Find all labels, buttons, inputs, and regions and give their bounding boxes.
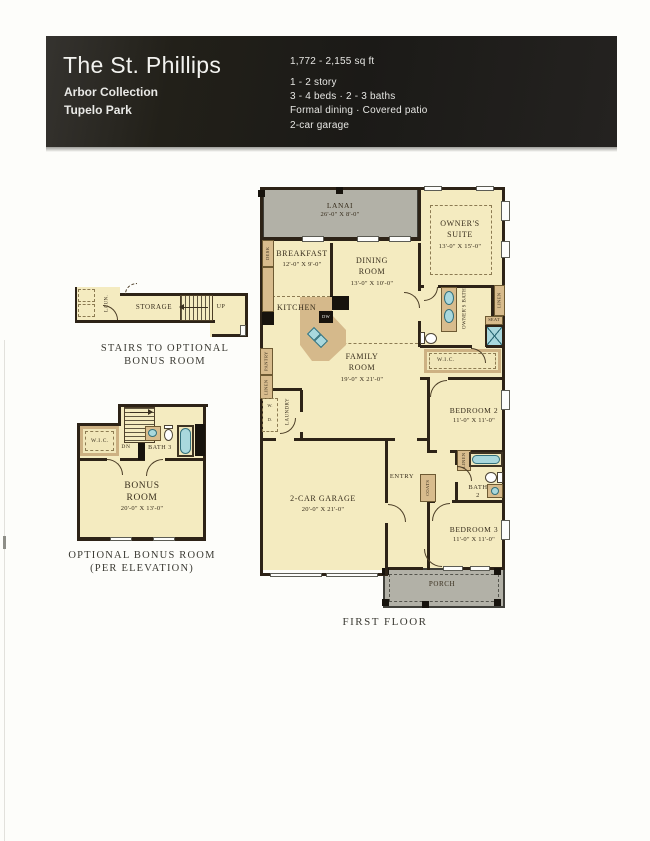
breakfast-label: BREAKFAST [264,250,340,259]
window [110,537,132,541]
stairs-arrowhead [148,409,153,415]
dishwasher-label: DW [319,315,333,320]
plan-title: The St. Phillips [63,52,221,79]
bedroom3-dims: 11'-0" X 11'-0" [436,536,512,543]
lanai-label: LANAI [300,202,380,210]
wall [300,432,303,438]
linen-label: LINEN [260,376,273,398]
dining-dims: 13'-0" X 10'-0" [336,280,408,287]
floorplan-sheet: { "header": { "title": "The St. Phillips… [0,0,650,841]
bonus-room-dims: 20'-0" X 13'-0" [92,505,192,512]
wall [455,482,458,500]
bonus-room-label-line2: ROOM [92,493,192,503]
bedroom2-label: BEDROOM 2 [436,407,512,415]
dining-label-line2: ROOM [336,268,408,277]
owners-linen-label: LINEN [494,287,505,314]
stairs-plan-caption-line1: STAIRS TO OPTIONAL [75,343,255,354]
shower [485,325,504,347]
porch-post [494,568,501,575]
bonus-plan-caption-line1: OPTIONAL BONUS ROOM [67,550,217,561]
spec-story: 1 - 2 story [290,77,337,88]
entry-label: ENTRY [384,473,420,480]
wall [77,537,206,541]
lanai-post [336,187,343,194]
bonus-room-plan: W.I.C. DN BATH 3 BONUS ROOM 20'-0" X 13'… [75,398,215,580]
garage-label: 2-CAR GARAGE [273,495,373,504]
wall [420,345,472,348]
storage-label: STORAGE [123,304,185,312]
wall [262,187,505,190]
wall [165,458,206,461]
washer-label: W. [262,404,278,409]
family-dims: 19'-0" X 21'-0" [322,376,402,383]
window [357,236,379,242]
kitchen-label: KITCHEN [277,304,321,313]
window [501,241,510,258]
first-floor-caption: FIRST FLOOR [325,616,445,628]
bath2-tub [469,452,503,467]
coats-label: COATS [420,476,436,500]
dining-label-line1: DINING [336,257,408,266]
wall [75,287,77,323]
porch-post [494,599,501,606]
bath3-toilet [164,429,173,441]
window [389,236,411,242]
range-appliance [262,312,274,325]
first-floor-plan: DESK DW PANTRY LINEN W. D. LAUNDRY OWNER… [258,186,514,626]
window [501,201,510,221]
lanai-post [258,190,265,197]
header-band-shadow [46,147,617,152]
family-label-line2: ROOM [322,364,402,373]
stairs-plan-caption-line2: BONUS ROOM [75,356,255,367]
wic-label: W.I.C. [82,438,118,444]
bath2-label-line1: BATH [464,484,492,491]
header-band: The St. Phillips Arbor Collection Tupelo… [46,36,617,147]
scan-artifact-tick [3,536,6,549]
spec-garage: 2-car garage [290,120,349,131]
washer-outline [78,289,95,302]
family-label-line1: FAMILY [322,353,402,362]
toilet [425,333,437,344]
garage-dims: 20'-0" X 21'-0" [273,506,373,513]
dn-label: DN [117,444,135,450]
pantry-label: PANTRY [260,350,273,373]
lanai-dims: 26'-0" X 8'-0" [300,211,380,218]
bath3-label: BATH 3 [143,445,177,452]
wall [385,567,423,570]
wall [452,500,505,503]
wall [448,377,505,380]
bedroom2-dims: 11'-0" X 11'-0" [436,417,512,424]
window [476,186,494,191]
scan-artifact-line [4,340,5,841]
bath3-tub [177,425,194,457]
stairs-arrow [184,307,208,308]
bonus-room-label-line1: BONUS [92,481,192,491]
stairs-up [180,295,213,321]
wic-label: W.I.C. [426,357,466,363]
window [302,236,324,242]
stairs-plan: LAUN. STORAGE UP STAIRS TO OPTIONAL BONU… [75,283,257,375]
bedroom3-label: BEDROOM 3 [436,526,512,534]
stairs-arrow [130,412,148,413]
spec-features: Formal dining · Covered patio [290,105,428,116]
stairs-arrowhead [179,304,184,310]
wall [385,523,388,576]
bath3-sink [148,429,157,437]
garage-door [270,573,322,577]
owners-suite-dims: 13'-0" X 15'-0" [420,243,500,250]
bath2-toilet [485,472,497,483]
owners-suite-dashed-outline [430,205,492,275]
wall [417,438,430,441]
dryer-outline [78,304,95,317]
bath2-toilet-tank [497,472,503,483]
porch-label: PORCH [404,581,480,589]
window [443,566,463,571]
vanity-sink [444,309,454,323]
window [240,325,246,336]
community-name: Tupelo Park [64,103,132,117]
window [470,566,490,571]
spec-sqft: 1,772 - 2,155 sq ft [290,56,374,67]
owners-suite-label-line2: SUITE [420,231,500,240]
wall-mass [330,296,349,310]
kitchen-counter [262,267,274,312]
owners-bath-label: OWNER'S BATH [457,286,473,330]
garage-door [326,573,378,577]
wall [118,404,121,425]
wall [300,390,303,412]
spec-beds-baths: 3 - 4 beds · 2 - 3 baths [290,91,395,102]
window [153,537,175,541]
door-arc [125,283,137,294]
wall [418,243,421,291]
porch-post [422,601,429,608]
bonus-plan-caption-line2: (PER ELEVATION) [67,563,217,574]
dryer-label: D. [262,418,278,423]
wall [262,438,276,441]
porch-post [382,599,389,606]
collection-name: Arbor Collection [64,85,158,99]
owners-suite-label-line1: OWNER'S [420,220,500,229]
bath2-sink [491,487,499,495]
wall [427,450,437,453]
window [424,186,442,191]
wall [294,438,385,441]
wall [385,438,388,503]
seat-label: SEAT [485,318,503,323]
bath2-label-line2: 2 [464,492,492,499]
breakfast-dims: 12'-0" X 9'-0" [264,261,340,268]
wall-mass [195,424,205,456]
vanity-sink [444,291,454,305]
up-label: UP [214,304,228,311]
wall [77,458,107,461]
